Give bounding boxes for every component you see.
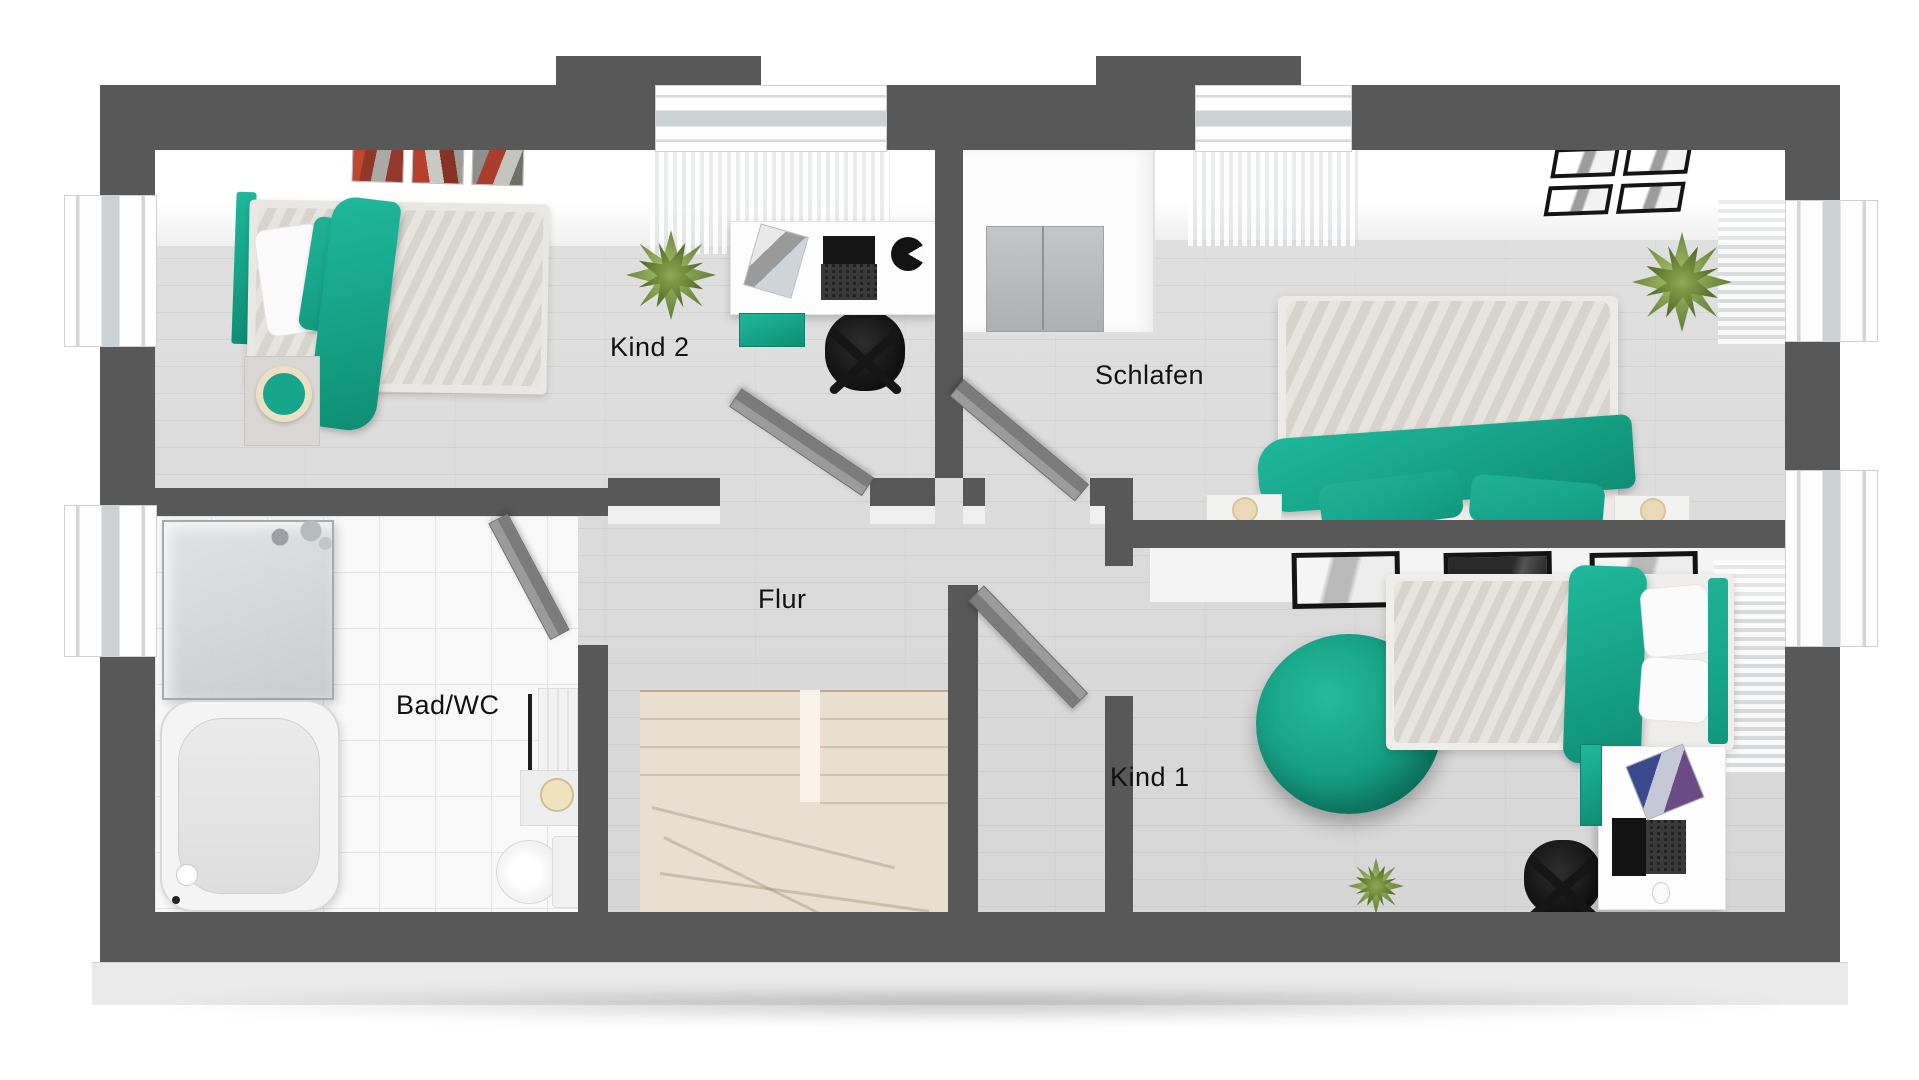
schlafen-picture-frames [1544,144,1693,217]
outer-wall-right-2 [1785,340,1840,470]
kind1-bed-mattress [1394,581,1584,743]
kind2-plant [626,230,716,320]
hall-wall-face-1 [608,506,720,524]
kind2-office-chair [825,311,905,391]
shower-fixtures [262,514,334,556]
schlafen-wardrobe-door-gap [1042,226,1044,330]
kind1-pillow-2 [1638,656,1712,725]
kind1-mouse [1652,882,1670,904]
bathtub-drain [172,896,180,904]
picture-frame [1550,146,1620,178]
room-label-kind2: Kind 2 [610,332,690,363]
kind1-laptop-screen [1612,818,1646,876]
kind2-nightstand-lamp [256,366,312,422]
kind1-bed-headboard [1708,578,1728,744]
hall-wall-face-3 [963,506,985,524]
wall-stairs-east [948,585,978,912]
picture-frame [1544,184,1614,216]
outer-wall-left-2 [100,345,155,505]
stair-flight-right [820,690,962,820]
kind2-laptop-screen [823,236,875,264]
hall-wall-face-2 [870,506,935,524]
wall-schlafen-kind1 [1133,520,1785,548]
bathtub-basin [178,718,320,894]
schlafen-wardrobe-doors [986,226,1104,332]
kind2-side-window [64,195,157,347]
outer-wall-bottom [100,912,1840,962]
wash-basin [540,778,574,812]
outer-wall-top-2 [885,85,1195,150]
kind2-desk-drawer-unit [739,313,805,347]
wall-connector [1105,478,1133,566]
wall-schlafen-south-left [963,478,985,506]
schlafen-window-curtain [1188,150,1358,246]
wall-bump-2 [1096,56,1301,86]
room-label-kind1: Kind 1 [1110,762,1190,793]
kind1-office-chair [1524,840,1602,916]
floor-plan: Kind 2 Schlafen Flur Bad/WC Kind 1 [0,0,1919,1080]
schlafen-window [1195,85,1352,152]
schlafen-plant [1632,232,1732,332]
wall-bath-east [578,645,608,912]
wall-bath-north [155,488,608,516]
stair-flight-left [640,690,800,800]
room-label-schlafen: Schlafen [1095,360,1204,391]
kind2-desk-lamp [891,237,925,271]
wall-kind1-west [1105,696,1133,912]
bathtub-faucet [176,864,198,886]
bath-window [64,505,157,657]
outer-wall-left-1 [100,85,155,195]
wall-kind2-south-left [608,478,720,506]
kind1-pillow-1 [1639,583,1713,659]
wall-kind2-schlafen [935,150,963,478]
kind1-laptop-keyboard [1646,820,1686,874]
ground-shadow [130,990,1810,1024]
outer-wall-top-3 [1350,85,1840,150]
outer-wall-top-1 [100,85,655,150]
room-label-flur: Flur [758,584,807,615]
picture-frame [1616,182,1686,214]
stair-gap [800,690,820,802]
wall-kind2-south-right [870,478,935,506]
kind2-laptop-keyboard [821,264,877,300]
kind1-blanket [1563,565,1648,766]
kind1-desk-drawer-unit [1580,744,1602,826]
schlafen-side-window [1785,200,1878,342]
kind1-plant [1348,858,1404,914]
kind2-window [655,85,887,152]
kind1-window [1785,470,1878,647]
wall-bump-1 [556,56,761,86]
kind1-picture-frame-1 [1292,551,1401,609]
room-label-bad-wc: Bad/WC [396,690,500,721]
outer-wall-right-1 [1785,85,1840,200]
